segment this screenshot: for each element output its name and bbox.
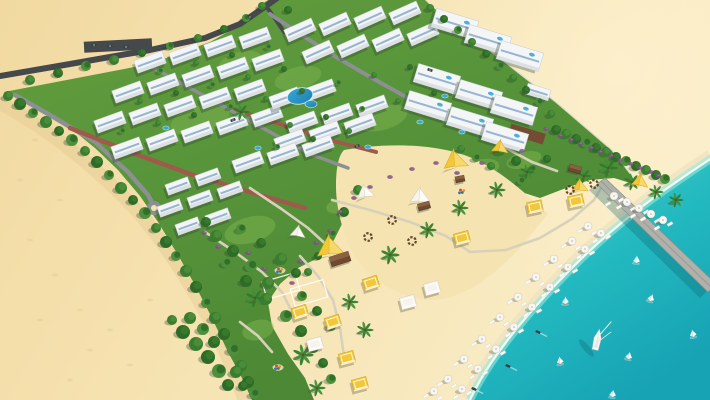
playground bbox=[457, 188, 468, 194]
swimming-pool bbox=[417, 120, 423, 124]
car bbox=[91, 44, 96, 47]
swimming-pool bbox=[442, 94, 448, 98]
sand-speckle bbox=[27, 239, 33, 242]
car bbox=[107, 45, 112, 48]
sand-speckle bbox=[107, 329, 113, 332]
playground bbox=[273, 364, 284, 370]
sand-speckle bbox=[32, 139, 38, 142]
sand-speckle bbox=[77, 309, 83, 312]
sand-speckle bbox=[67, 379, 73, 382]
resort-aerial-render bbox=[0, 0, 710, 400]
sand-speckle bbox=[147, 299, 153, 302]
swimming-pool bbox=[163, 126, 169, 130]
sand-speckle bbox=[87, 349, 93, 352]
swimming-pool bbox=[459, 130, 465, 134]
swimming-pool bbox=[365, 145, 371, 149]
scene-canvas bbox=[0, 0, 710, 400]
playground bbox=[275, 267, 286, 273]
sand-speckle bbox=[52, 274, 58, 277]
swimming-pool bbox=[255, 146, 261, 150]
sand-speckle bbox=[17, 179, 23, 182]
sand-speckle bbox=[57, 199, 63, 202]
sand-speckle bbox=[37, 319, 43, 322]
sand-speckle bbox=[127, 364, 133, 367]
car bbox=[123, 46, 128, 49]
